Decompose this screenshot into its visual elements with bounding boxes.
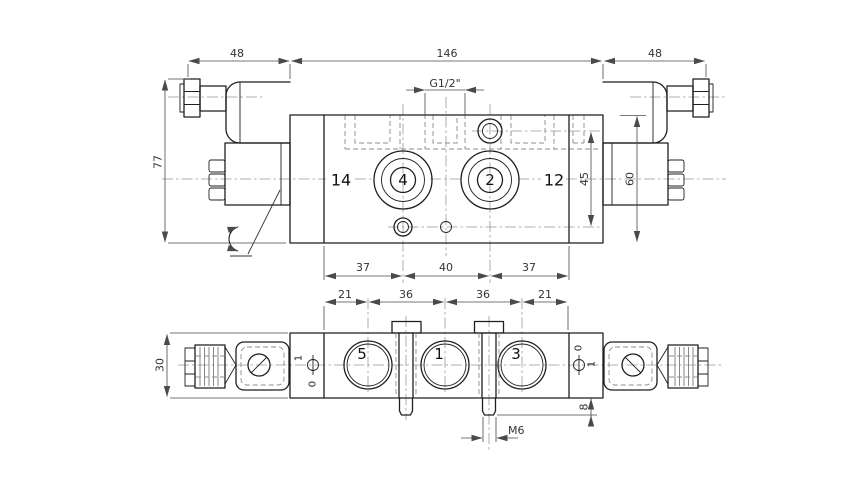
dim-48-left: 48 [230, 47, 244, 60]
dim-48-right: 48 [648, 47, 662, 60]
top-view-right-solenoid [603, 79, 713, 205]
bottom-view: 5 1 3 1 0 0 1 [154, 288, 725, 450]
dim-45: 45 [578, 172, 591, 186]
port-label-2: 2 [485, 171, 495, 189]
top-view-hidden-cavities [345, 114, 601, 149]
dim-36-left: 36 [399, 288, 413, 301]
dim-30: 30 [154, 358, 167, 372]
top-view: 14 4 2 12 48 146 48 77 G1/2" [152, 47, 727, 283]
override-left-label-1: 1 [294, 355, 305, 361]
top-view-ports [374, 119, 519, 236]
bottom-view-left-connector [185, 342, 289, 390]
dim-60: 60 [624, 172, 637, 186]
bottom-view-right-connector [604, 342, 708, 390]
port-label-1: 1 [434, 345, 444, 363]
bottom-view-centerlines [178, 298, 724, 450]
top-view-centerlines [162, 97, 726, 283]
valve-technical-drawing: 14 4 2 12 48 146 48 77 G1/2" [0, 0, 868, 493]
port-label-3: 3 [511, 345, 521, 363]
port-label-12: 12 [544, 171, 564, 190]
override-right-label-0: 0 [574, 345, 585, 351]
port-label-4: 4 [398, 171, 408, 189]
dim-37-right: 37 [522, 261, 536, 274]
dim-40: 40 [439, 261, 453, 274]
dim-8: 8 [578, 404, 591, 411]
manual-override-ribs-left [209, 160, 225, 200]
mounting-bolt-left [392, 322, 421, 416]
dim-37-left: 37 [356, 261, 370, 274]
override-left-label-0: 0 [308, 381, 319, 387]
rotatable-connector-symbol [229, 190, 280, 256]
dim-m6: M6 [508, 424, 525, 437]
manual-override-ribs-right [668, 160, 684, 200]
top-view-left-solenoid [180, 79, 290, 205]
bottom-view-valve-body [290, 333, 603, 398]
override-right-label-1: 1 [587, 361, 598, 367]
dim-21-left: 21 [338, 288, 352, 301]
dim-77: 77 [152, 155, 165, 169]
dim-146: 146 [437, 47, 458, 60]
dim-thread-g12: G1/2" [429, 77, 460, 90]
port-label-14: 14 [331, 171, 351, 190]
dim-36-right: 36 [476, 288, 490, 301]
dim-21-right: 21 [538, 288, 552, 301]
port-label-5: 5 [357, 345, 367, 363]
